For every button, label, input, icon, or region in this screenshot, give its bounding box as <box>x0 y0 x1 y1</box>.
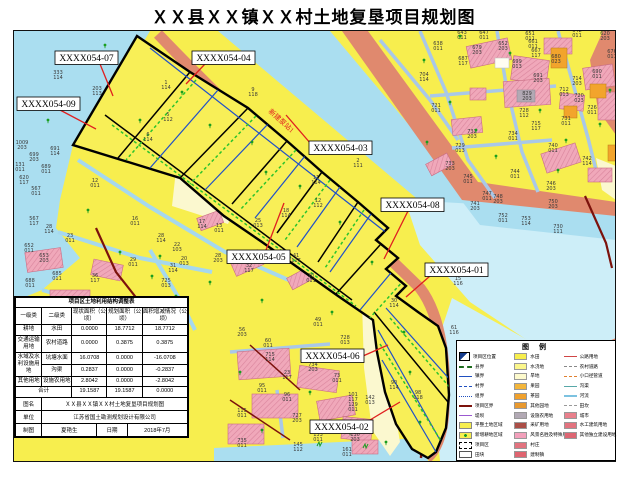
legend-column-landuse: 水田水浇地旱地果园茶园其他园地设施农用地采矿用地风景名胜及特殊用地村庄建制镇 <box>514 352 563 460</box>
table-row: 水域及水利设施用地坑塘水面 16.07080.0000 -16.0708 <box>16 352 188 364</box>
legend-item-label: 农村道路 <box>580 364 598 370</box>
callout-label: XXXX054-01 <box>429 266 484 276</box>
callout-label: XXXX054-02 <box>314 423 369 433</box>
legend-item: 项目区 <box>459 440 514 450</box>
legend-item: 水田 <box>514 352 563 362</box>
legend-item: 其他园地 <box>514 401 563 411</box>
adjustment-table: 项目区土地利用结构调整表 一级类 二级类 现状面积（公顷） 规划面积（公顷） 面… <box>14 296 189 438</box>
table-row: 交通运输用地农村道路 0.00000.3875 0.3875 <box>16 335 188 352</box>
boundary-symbol-icon <box>459 415 472 416</box>
parcel-number: 333114 <box>53 70 63 81</box>
parcel-number: 652011 <box>24 243 34 254</box>
legend-item: 建制镇 <box>514 450 563 460</box>
col-header: 二级类 <box>42 308 72 325</box>
legend-item: 平整土地区域 <box>459 421 514 431</box>
parcel-number: 687117 <box>458 56 468 67</box>
parcel-number: 699013 <box>512 59 522 70</box>
parcel-number: 567011 <box>31 186 41 197</box>
parcel-number: 203113 <box>92 86 102 97</box>
table-row: 沟渠 0.28370.0000 -0.2837 <box>16 365 188 377</box>
legend: 图 例 项目区位置县界镇界村界组界项目区界堤坝平整土地区域新增耕地区域项目区田块… <box>456 340 616 461</box>
parcel-number: 730111 <box>553 224 563 235</box>
table-total-row: 合计 19.158719.1587 0.0000 <box>16 387 188 397</box>
parcel-number: 690011 <box>592 69 602 80</box>
legend-item: 组界 <box>459 391 514 401</box>
legend-item-label: 田坎 <box>580 403 589 409</box>
legend-item: 设施农用地 <box>514 411 563 421</box>
col-header: 现状面积（公顷） <box>72 308 107 325</box>
parcel-number: 721011 <box>431 103 441 114</box>
col-header: 一级类 <box>16 308 42 325</box>
landuse-symbol-icon <box>514 422 527 429</box>
parcel-number: 652203 <box>498 41 508 52</box>
parcel-number: 715114 <box>265 352 275 363</box>
landuse-symbol-icon <box>514 432 527 439</box>
parcel-number: 720023 <box>574 93 584 104</box>
boundary-symbol-icon <box>459 405 472 407</box>
legend-item-label: 平整土地区域 <box>475 422 503 428</box>
callout-label: XXXX054-07 <box>59 54 114 64</box>
table-title: 项目区土地利用结构调整表 <box>16 298 188 308</box>
landuse-symbol-icon <box>514 412 527 419</box>
parcel-number: 691114 <box>50 146 60 157</box>
legend-item: 公路用地 <box>564 352 613 362</box>
legend-item-label: 旱地 <box>530 373 539 379</box>
legend-item: 小口径管道 <box>564 372 613 382</box>
linework-symbol-icon <box>564 395 577 397</box>
legend-item-label: 果园 <box>530 383 539 389</box>
boundary-symbol-icon <box>459 352 470 361</box>
legend-item: 农村道路 <box>564 362 613 372</box>
legend-item-label: 堤坝 <box>475 413 484 419</box>
parcel-number: 750203 <box>548 199 558 210</box>
parcel-number: 725013 <box>161 278 171 289</box>
parcel-number: 726011 <box>587 105 597 116</box>
landuse-symbol-icon <box>514 442 527 449</box>
parcel-number: 735011 <box>237 438 247 449</box>
legend-item-label: 项目区界 <box>475 403 493 409</box>
parcel-number: 643011 <box>457 30 467 41</box>
legend-title: 图 例 <box>459 342 613 352</box>
signature-table: 图名 ＸＸ县ＸＸ镇ＸＸ村土地复垦项目规划图 单位 江苏省国土勘测规划设计有限公司… <box>15 397 188 437</box>
map-name-value: ＸＸ县ＸＸ镇ＸＸ村土地复垦项目规划图 <box>42 397 188 410</box>
legend-item: 河流 <box>564 391 613 401</box>
planning-map-page: ＸＸ县ＸＸ镇ＸＸ村土地复垦项目规划图 <box>0 0 627 478</box>
callout-label: XXXX054-09 <box>21 100 76 110</box>
legend-item-label: 水田 <box>530 354 539 360</box>
parcel-number: 752011 <box>498 213 508 224</box>
parcel-number: 691203 <box>533 73 543 84</box>
boundary-symbol-icon <box>459 451 472 458</box>
parcel-number: 714203 <box>572 76 582 87</box>
parcel-number: 620203 <box>600 31 610 42</box>
legend-item-label: 田块 <box>475 452 484 458</box>
legend-item-label: 县界 <box>475 364 484 370</box>
parcel-number: 129011 <box>348 402 358 413</box>
parcel-number: 653203 <box>39 253 49 264</box>
map-name-label: 图名 <box>16 397 42 410</box>
legend-item-label: 建制镇 <box>530 452 544 458</box>
parcel-number: 688011 <box>25 278 35 289</box>
legend-item: 项目区位置 <box>459 352 514 362</box>
parcel-number: 680023 <box>551 54 561 65</box>
legend-item-label: 水浇地 <box>530 364 544 370</box>
parcel-number: 729013 <box>455 143 465 154</box>
legend-item-label: 新增耕地区域 <box>475 432 503 438</box>
table-row: 其他用地设施农用地 2.80420.0000 -2.8042 <box>16 377 188 387</box>
landuse-symbol-icon <box>514 373 527 380</box>
parcel-number: 746203 <box>546 181 556 192</box>
landuse-symbol-icon <box>514 393 527 400</box>
parcel-number: 740011 <box>548 143 558 154</box>
legend-item: 村庄 <box>514 440 563 450</box>
parcel-number: 676011 <box>607 49 616 60</box>
col-header: 面积增减情况（公顷） <box>142 308 187 325</box>
linework-symbol-icon <box>564 386 577 387</box>
legend-item: 县界 <box>459 362 514 372</box>
parcel-number: 689011 <box>41 164 51 175</box>
parcel-number: 699203 <box>29 152 39 163</box>
legend-item-label: 公路用地 <box>580 354 598 360</box>
date-label: 日期 <box>97 423 127 436</box>
parcel-number: 748203 <box>493 194 503 205</box>
parcel-number: 679203 <box>472 45 482 56</box>
legend-item-label: 水工建筑用地 <box>580 422 608 428</box>
legend-item: 堤坝 <box>459 411 514 421</box>
linework-symbol-icon <box>564 405 577 406</box>
parcel-number: 161011 <box>342 447 352 458</box>
legend-item-label: 河流 <box>580 393 589 399</box>
legend-item: 城市 <box>564 411 613 421</box>
landuse-symbol-icon <box>514 451 527 458</box>
boundary-symbol-icon <box>459 366 472 368</box>
legend-item-label: 茶园 <box>530 393 539 399</box>
legend-item-label: 村界 <box>475 383 484 389</box>
linework-symbol-icon <box>564 432 577 439</box>
legend-item-label: 采矿用地 <box>530 422 548 428</box>
parcel-number: 647011 <box>479 30 489 41</box>
landuse-symbol-icon <box>514 383 527 390</box>
parcel-number: 685011 <box>52 271 62 282</box>
callout-label: XXXX054-04 <box>196 54 251 64</box>
boundary-symbol-icon <box>459 432 472 439</box>
callout-label: XXXX054-03 <box>313 144 368 154</box>
parcel-number: 744011 <box>510 169 520 180</box>
legend-column-boundaries: 项目区位置县界镇界村界组界项目区界堤坝平整土地区域新增耕地区域项目区田块 <box>459 352 514 460</box>
legend-item: 项目区界 <box>459 401 514 411</box>
parcel-number: 742114 <box>582 156 592 167</box>
parcel-number: 1009203 <box>16 140 29 151</box>
legend-item: 果园 <box>514 381 563 391</box>
legend-item: 旱地 <box>514 372 563 382</box>
landuse-symbol-icon <box>514 353 527 360</box>
parcel-number: 115011 <box>237 408 247 419</box>
legend-item: 风景名胜及特殊用地 <box>514 430 563 440</box>
legend-item-label: 组界 <box>475 393 484 399</box>
unit-label: 单位 <box>16 410 42 423</box>
callout-label: XXXX054-05 <box>231 253 286 263</box>
parcel-number: 747011 <box>482 191 492 202</box>
legend-item: 田坎 <box>564 401 613 411</box>
legend-item: 镇界 <box>459 372 514 382</box>
legend-column-lines: 公路用地农村道路小口径管道沟渠河流田坎城市水工建筑用地其他独立建设用地 <box>564 352 613 460</box>
parcel-number: 567117 <box>29 216 39 227</box>
parcel-number: 728013 <box>340 335 350 346</box>
linework-symbol-icon <box>564 422 577 429</box>
legend-item-label: 沟渠 <box>580 383 589 389</box>
parcel-number: 734203 <box>308 362 318 373</box>
legend-item-label: 项目区位置 <box>473 354 496 360</box>
unit-value: 江苏省国土勘测规划设计有限公司 <box>42 410 188 423</box>
author-value: 夏艳生 <box>42 423 97 436</box>
legend-item-label: 设施农用地 <box>530 413 553 419</box>
landuse-symbol-icon <box>514 402 527 409</box>
parcel-number: 667117 <box>531 48 541 59</box>
parcel-number: 731011 <box>561 116 571 127</box>
parcel-number: 745011 <box>463 174 473 185</box>
boundary-symbol-icon <box>459 386 472 387</box>
parcel-number: 712013 <box>559 87 569 98</box>
legend-item: 村界 <box>459 381 514 391</box>
legend-item-label: 城市 <box>580 413 589 419</box>
legend-item-label: 村庄 <box>530 442 539 448</box>
parcel-number: 131011 <box>15 162 25 173</box>
legend-item: 新增耕地区域 <box>459 430 514 440</box>
parcel-number: 734011 <box>508 131 518 142</box>
parcel-number: 142013 <box>365 395 375 406</box>
parcel-number: 638011 <box>433 41 443 52</box>
parcel-number: 704114 <box>419 72 429 83</box>
date-value: 2018年7月 <box>127 423 187 436</box>
parcel-number: 620117 <box>19 175 29 186</box>
parcel-number: 733203 <box>445 161 455 172</box>
legend-item-label: 小口径管道 <box>580 373 603 379</box>
parcel-number: 753114 <box>521 216 531 227</box>
legend-item-label: 项目区 <box>475 442 489 448</box>
legend-item: 水浇地 <box>514 362 563 372</box>
legend-item: 沟渠 <box>564 381 613 391</box>
callout-label: XXXX054-08 <box>385 201 440 211</box>
land-use-table: 项目区土地利用结构调整表 一级类 二级类 现状面积（公顷） 规划面积（公顷） 面… <box>15 297 188 398</box>
legend-item-label: 其他独立建设用地 <box>580 432 617 438</box>
legend-item-label: 镇界 <box>475 373 484 379</box>
parcel-number: 728112 <box>519 108 529 119</box>
legend-item: 茶园 <box>514 391 563 401</box>
table-row: 耕地水田 0.000018.7712 18.7712 <box>16 325 188 335</box>
parcel-number: 741203 <box>470 201 480 212</box>
boundary-symbol-icon <box>459 442 472 449</box>
linework-symbol-icon <box>564 356 577 357</box>
boundary-symbol-icon <box>459 422 472 429</box>
legend-item: 水工建筑用地 <box>564 421 613 431</box>
parcel-number: 829203 <box>522 91 532 102</box>
col-header: 规划面积（公顷） <box>107 308 142 325</box>
legend-item: 其他独立建设用地 <box>564 430 613 440</box>
callout-label: XXXX054-06 <box>305 352 360 362</box>
parcel-number: 715117 <box>531 121 541 132</box>
linework-symbol-icon <box>564 376 577 377</box>
linework-symbol-icon <box>564 366 577 367</box>
boundary-symbol-icon <box>459 396 472 397</box>
landuse-symbol-icon <box>514 363 527 370</box>
parcel-number: 642011 <box>572 30 582 39</box>
author-label: 制图 <box>16 423 42 436</box>
page-title: ＸＸ县ＸＸ镇ＸＸ村土地复垦项目规划图 <box>0 3 627 28</box>
legend-item: 田块 <box>459 450 514 460</box>
linework-symbol-icon <box>564 412 577 419</box>
legend-item-label: 其他园地 <box>530 403 548 409</box>
parcel-number: 145112 <box>293 442 303 453</box>
legend-item: 采矿用地 <box>514 421 563 431</box>
parcel-number: 727203 <box>292 413 302 424</box>
boundary-symbol-icon <box>459 376 472 377</box>
